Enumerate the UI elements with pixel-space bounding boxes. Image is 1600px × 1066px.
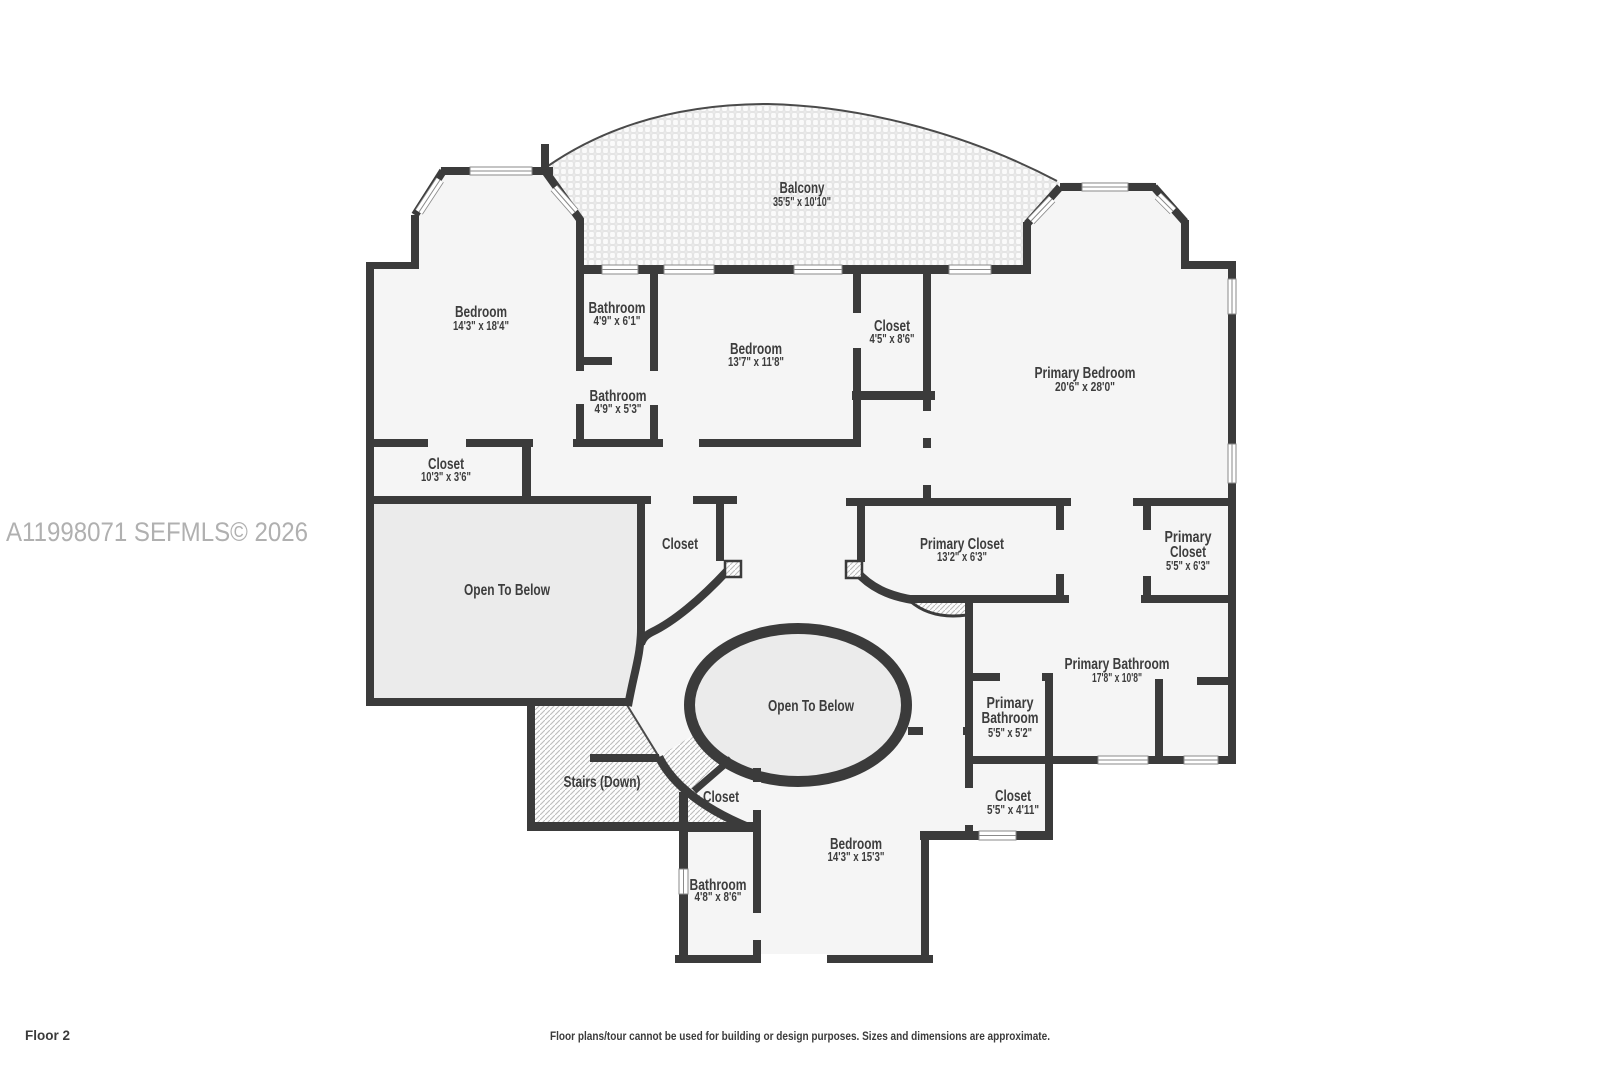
svg-text:4'9" x 5'3": 4'9" x 5'3" xyxy=(595,402,642,416)
svg-text:5'5" x 6'3": 5'5" x 6'3" xyxy=(1166,559,1210,573)
svg-text:4'8" x 8'6": 4'8" x 8'6" xyxy=(695,890,742,904)
svg-text:Open To Below: Open To Below xyxy=(464,582,551,599)
svg-text:4'5" x 8'6": 4'5" x 8'6" xyxy=(870,332,915,346)
svg-text:13'7" x 11'8": 13'7" x 11'8" xyxy=(728,355,784,369)
svg-text:Open To Below: Open To Below xyxy=(768,698,855,715)
svg-text:Closet: Closet xyxy=(662,536,698,553)
svg-text:A11998071 SEFMLS© 2026: A11998071 SEFMLS© 2026 xyxy=(6,517,308,547)
svg-text:20'6" x 28'0": 20'6" x 28'0" xyxy=(1055,380,1115,394)
svg-text:Floor plans/tour cannot be use: Floor plans/tour cannot be used for buil… xyxy=(550,1031,1050,1043)
svg-text:4'9" x 6'1": 4'9" x 6'1" xyxy=(594,314,641,328)
svg-text:Bathroom: Bathroom xyxy=(982,710,1039,727)
svg-text:14'3" x 18'4": 14'3" x 18'4" xyxy=(453,319,509,333)
svg-text:Closet: Closet xyxy=(703,789,739,806)
svg-text:14'3" x 15'3": 14'3" x 15'3" xyxy=(828,850,885,864)
svg-text:10'3" x 3'6": 10'3" x 3'6" xyxy=(421,470,471,484)
svg-text:5'5" x 4'11": 5'5" x 4'11" xyxy=(987,803,1039,817)
svg-text:Floor 2: Floor 2 xyxy=(25,1028,70,1043)
svg-text:35'5" x 10'10": 35'5" x 10'10" xyxy=(773,195,831,209)
svg-text:17'8" x 10'8": 17'8" x 10'8" xyxy=(1092,671,1142,685)
svg-text:5'5" x 5'2": 5'5" x 5'2" xyxy=(988,726,1032,740)
svg-text:13'2" x 6'3": 13'2" x 6'3" xyxy=(937,550,987,564)
svg-text:Stairs (Down): Stairs (Down) xyxy=(564,774,641,791)
